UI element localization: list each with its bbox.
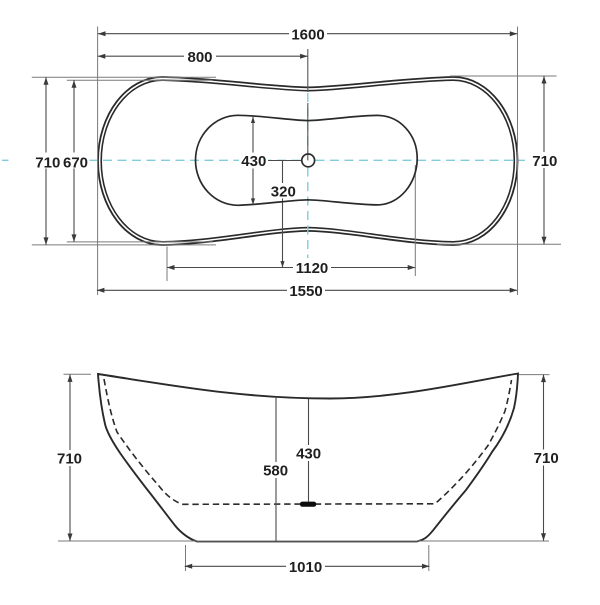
svg-text:1550: 1550	[289, 283, 322, 300]
svg-text:1120: 1120	[296, 260, 329, 277]
svg-text:670: 670	[63, 154, 88, 171]
svg-text:710: 710	[532, 153, 557, 170]
svg-text:580: 580	[263, 463, 288, 480]
svg-text:430: 430	[296, 445, 321, 462]
svg-text:710: 710	[534, 450, 559, 467]
svg-text:320: 320	[271, 184, 296, 201]
svg-text:710: 710	[57, 451, 82, 468]
svg-text:430: 430	[241, 153, 266, 170]
svg-text:1010: 1010	[289, 559, 322, 576]
svg-text:800: 800	[187, 49, 212, 66]
svg-text:710: 710	[35, 154, 60, 171]
svg-text:1600: 1600	[291, 27, 324, 44]
